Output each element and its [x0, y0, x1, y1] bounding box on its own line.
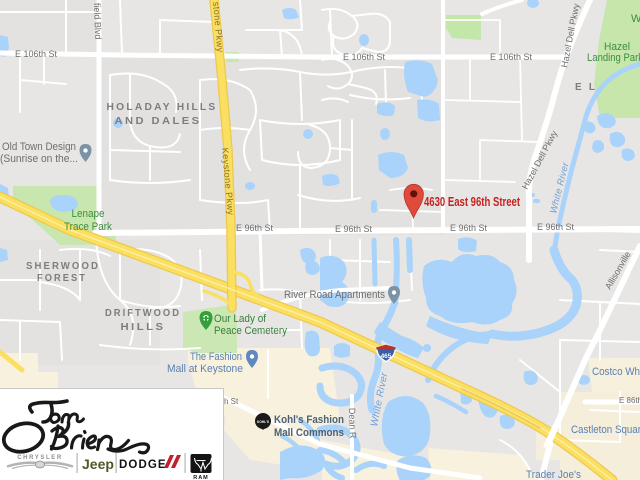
svg-text:Mall at Keystone: Mall at Keystone: [167, 363, 243, 375]
svg-text:E 106th St: E 106th St: [15, 49, 58, 59]
svg-text:h St: h St: [224, 397, 239, 406]
svg-text:AND DALES: AND DALES: [115, 116, 202, 127]
svg-text:Peace Cemetery: Peace Cemetery: [214, 325, 287, 337]
svg-text:Castleton Squar: Castleton Squar: [571, 424, 640, 436]
svg-text:DRIFTWOOD: DRIFTWOOD: [105, 308, 181, 319]
svg-text:E 96th St: E 96th St: [450, 223, 488, 233]
svg-text:E 106th St: E 106th St: [490, 52, 533, 62]
svg-text:RAM: RAM: [193, 475, 209, 480]
svg-text:KOHL'S: KOHL'S: [257, 420, 269, 424]
svg-text:HOLADAY HILLS: HOLADAY HILLS: [107, 102, 218, 113]
svg-text:E 96th St: E 96th St: [335, 224, 373, 234]
svg-text:E 96th St: E 96th St: [537, 222, 575, 232]
svg-text:Kohl's Fashion: Kohl's Fashion: [274, 414, 344, 426]
svg-text:Old Town Design: Old Town Design: [2, 141, 76, 153]
svg-text:465: 465: [381, 353, 392, 360]
svg-text:Jeep: Jeep: [82, 456, 114, 472]
svg-text:field Blvd: field Blvd: [92, 3, 103, 40]
svg-text:Costco Wh: Costco Wh: [592, 366, 640, 378]
svg-text:River Road Apartments: River Road Apartments: [284, 289, 385, 301]
svg-text:DODGE: DODGE: [119, 459, 167, 471]
svg-text:SHERWOOD: SHERWOOD: [26, 261, 100, 272]
svg-text:FOREST: FOREST: [37, 273, 87, 284]
svg-text:Dean R: Dean R: [347, 408, 358, 439]
svg-text:E L: E L: [575, 82, 597, 93]
svg-text:Trader Joe's: Trader Joe's: [526, 469, 581, 480]
svg-text:(Sunrise on the...: (Sunrise on the...: [0, 153, 78, 165]
svg-text:Landing Park: Landing Park: [587, 52, 640, 64]
svg-text:The Fashion: The Fashion: [190, 351, 242, 363]
svg-text:Our Lady of: Our Lady of: [214, 313, 267, 325]
svg-text:E 96th St: E 96th St: [236, 223, 274, 233]
svg-text:Trace Park: Trace Park: [64, 221, 112, 233]
svg-text:Lenape: Lenape: [72, 208, 105, 220]
svg-text:W: W: [631, 13, 640, 25]
svg-text:CHRYSLER: CHRYSLER: [17, 455, 63, 461]
svg-text:HILLS: HILLS: [121, 322, 166, 333]
svg-text:E 86th: E 86th: [619, 396, 640, 405]
svg-text:4630 East 96th Street: 4630 East 96th Street: [424, 195, 521, 209]
svg-text:E 106th St: E 106th St: [343, 52, 386, 62]
svg-text:Mall Commons: Mall Commons: [274, 427, 344, 439]
